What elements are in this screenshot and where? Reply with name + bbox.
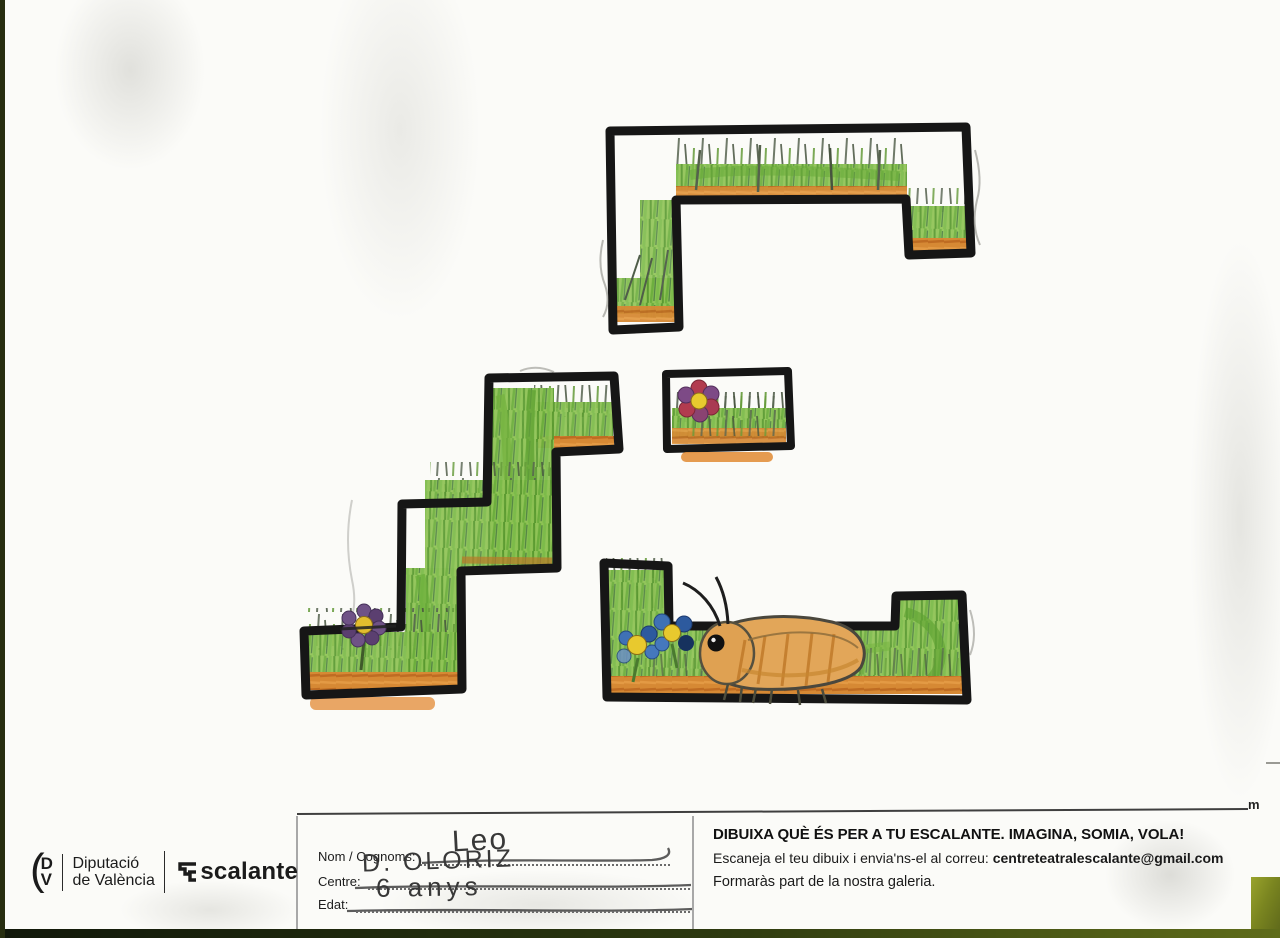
footer-divider-2 bbox=[692, 816, 694, 930]
logo-separator bbox=[62, 854, 64, 891]
org-line1: Diputació bbox=[72, 855, 154, 872]
org-name: Diputació de València bbox=[72, 855, 154, 890]
drawing-staircase bbox=[304, 368, 619, 710]
child-drawing bbox=[0, 0, 1280, 938]
drawing-flower-box bbox=[666, 371, 791, 462]
org-line2: de València bbox=[72, 872, 154, 889]
handwritten-edat: 6 anys bbox=[376, 871, 483, 904]
field-label-centre: Centre: bbox=[318, 874, 361, 889]
field-line-edat bbox=[356, 911, 690, 913]
contest-info: DIBUIXA QUÈ ÉS PER A TU ESCALANTE. IMAGI… bbox=[713, 826, 1243, 890]
instructions-text: Escaneja el teu dibuix i envia'ns-el al … bbox=[713, 850, 993, 866]
logo-separator bbox=[164, 851, 166, 893]
contest-instructions: Escaneja el teu dibuix i envia'ns-el al … bbox=[713, 850, 1243, 866]
edge-line-fragment bbox=[1266, 762, 1280, 764]
logo-paren: ( bbox=[30, 853, 45, 886]
gallery-note: Formaràs part de la nostra galeria. bbox=[713, 874, 1243, 890]
contest-email: centreteatralescalante@gmail.com bbox=[993, 850, 1224, 866]
contest-headline: DIBUIXA QUÈ ÉS PER A TU ESCALANTE. IMAGI… bbox=[713, 826, 1243, 843]
drawing-bottom-platform bbox=[604, 558, 974, 705]
scanner-bed-left bbox=[0, 0, 5, 938]
escalante-wordmark: scalante bbox=[174, 858, 298, 886]
scanner-bed-bottom bbox=[0, 929, 1280, 938]
org-logo: ( D V Diputació de València scalante bbox=[30, 846, 298, 898]
scanned-sheet: m ( D V Diputació de València scalante N… bbox=[0, 0, 1280, 938]
wordmark-text: scalante bbox=[200, 858, 298, 886]
drawing-top-bridge bbox=[600, 127, 980, 330]
field-label-edat: Edat: bbox=[318, 897, 348, 912]
edge-mark: m bbox=[1248, 797, 1260, 812]
escalante-stairs-glyph bbox=[174, 859, 198, 885]
